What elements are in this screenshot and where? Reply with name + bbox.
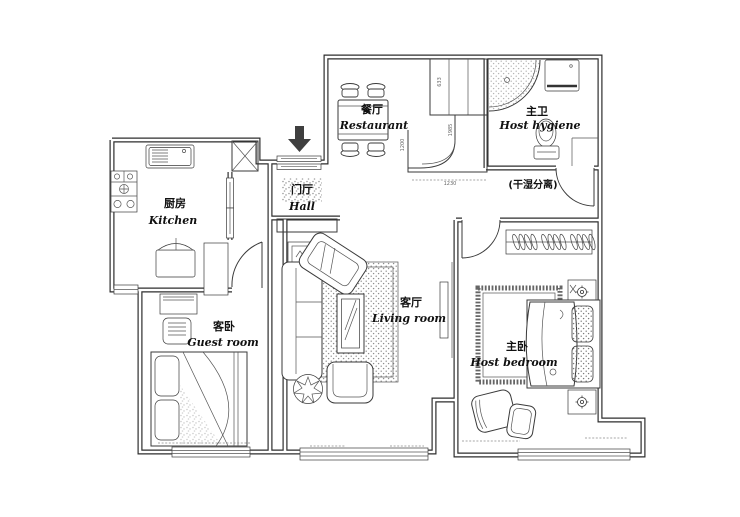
bath-vanity [545,60,579,91]
guest-room-window [172,447,250,457]
dim-633: 633 [437,77,443,87]
master-bedroom: 主卧 Host bedroom [462,230,628,441]
tv [440,262,452,358]
kitchen-fridge [156,238,195,277]
guest-label-en: Guest room [187,336,259,349]
living-label-zh: 客厅 [399,295,422,309]
bath-label-en: Host hygiene [498,119,580,132]
guest-label-zh: 客卧 [212,319,235,333]
master-bedroom-window [518,449,630,460]
master-bedroom-door-arc [462,220,500,258]
guest-desk [160,294,197,314]
dining-label-en: Restaurant [339,119,409,132]
guest-bedroom: 客卧 Guest room [151,294,259,446]
dim-1230: 1230 [444,181,457,187]
kitchen-sink [146,145,194,168]
bath-label-zh: 主卫 [526,104,548,118]
kitchen-room: 厨房 Kitchen [111,145,228,295]
coffee-table [337,294,364,353]
bedroom-armchair [470,388,537,439]
kitchen-window [114,285,138,294]
master-bath-room: 主卫 Host hygiene (干湿分离) [489,60,598,191]
living-label-en: Living room [371,312,446,325]
kitchen-label-zh: 厨房 [164,196,186,210]
dining-l-counter [408,115,487,172]
kitchen-stove [111,171,137,212]
plant [294,375,323,404]
shaft-box [232,141,258,171]
master-label-en: Host bedroom [469,356,557,369]
living-room-window [300,448,428,460]
hall-label-en: Hall [288,200,315,213]
dining-room: 633 1985 1200 1230 餐厅 Restaurant [338,59,487,187]
living-room: 客厅 Living room [277,219,452,446]
master-label-zh: 主卧 [506,339,528,353]
dim-1985: 1985 [448,124,454,137]
guest-bed [151,352,247,446]
wardrobe [506,230,596,254]
master-bed [526,300,600,388]
kitchen-label-en: Kitchen [148,214,198,227]
kitchen-sliding-door [227,178,234,238]
nightstand-bottom [568,390,596,414]
entry-arrow-icon [288,126,311,152]
living-armchair [327,362,373,403]
dim-1200: 1200 [400,139,406,152]
dining-label-zh: 餐厅 [360,102,383,116]
shower [489,60,540,111]
floor-plan-canvas: 厨房 Kitchen 633 1985 1200 1230 餐厅 Restaur… [0,0,740,517]
bathroom-door-arc [556,168,594,206]
guest-room-door-arc [232,242,262,288]
hall-area: 门厅 Hall [281,178,322,213]
entry-door [277,156,321,170]
hall-label-zh: 门厅 [291,182,313,196]
dry-wet-note: (干湿分离) [508,178,557,191]
storage-cabinet [204,243,228,295]
floor-plan-drawing: 厨房 Kitchen 633 1985 1200 1230 餐厅 Restaur… [0,0,740,517]
